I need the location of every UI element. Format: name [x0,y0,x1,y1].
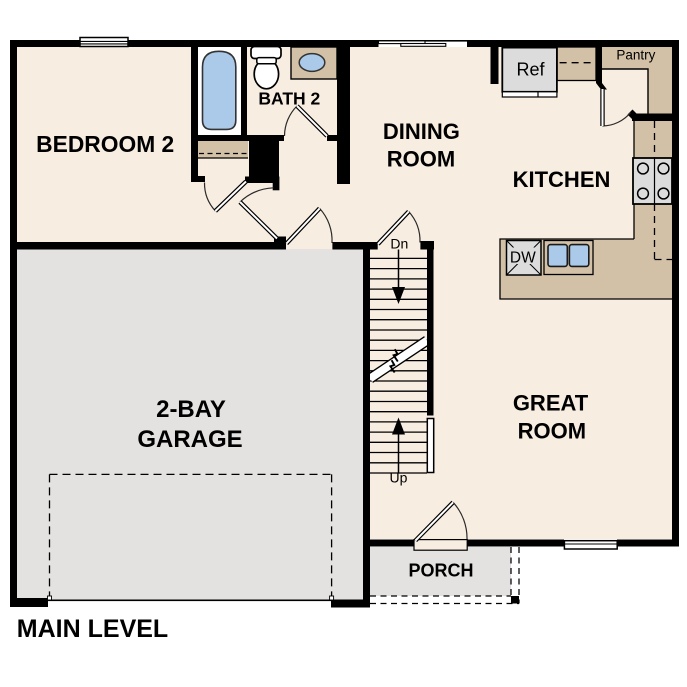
svg-text:BEDROOM 2: BEDROOM 2 [36,131,174,157]
svg-text:KITCHEN: KITCHEN [513,167,611,192]
svg-text:Pantry: Pantry [616,48,655,63]
svg-text:ROOM: ROOM [518,418,586,443]
svg-text:PORCH: PORCH [408,560,473,580]
svg-text:GREAT: GREAT [513,391,589,416]
svg-text:GARAGE: GARAGE [137,426,242,453]
svg-text:ROOM: ROOM [387,146,455,171]
svg-text:MAIN LEVEL: MAIN LEVEL [17,615,168,643]
svg-text:DW: DW [510,250,536,267]
svg-text:BATH 2: BATH 2 [258,89,320,109]
svg-text:DINING: DINING [383,119,460,144]
svg-text:Up: Up [390,470,408,486]
svg-text:Dn: Dn [390,236,408,252]
svg-text:2-BAY: 2-BAY [156,396,226,423]
svg-text:Ref: Ref [516,60,545,80]
